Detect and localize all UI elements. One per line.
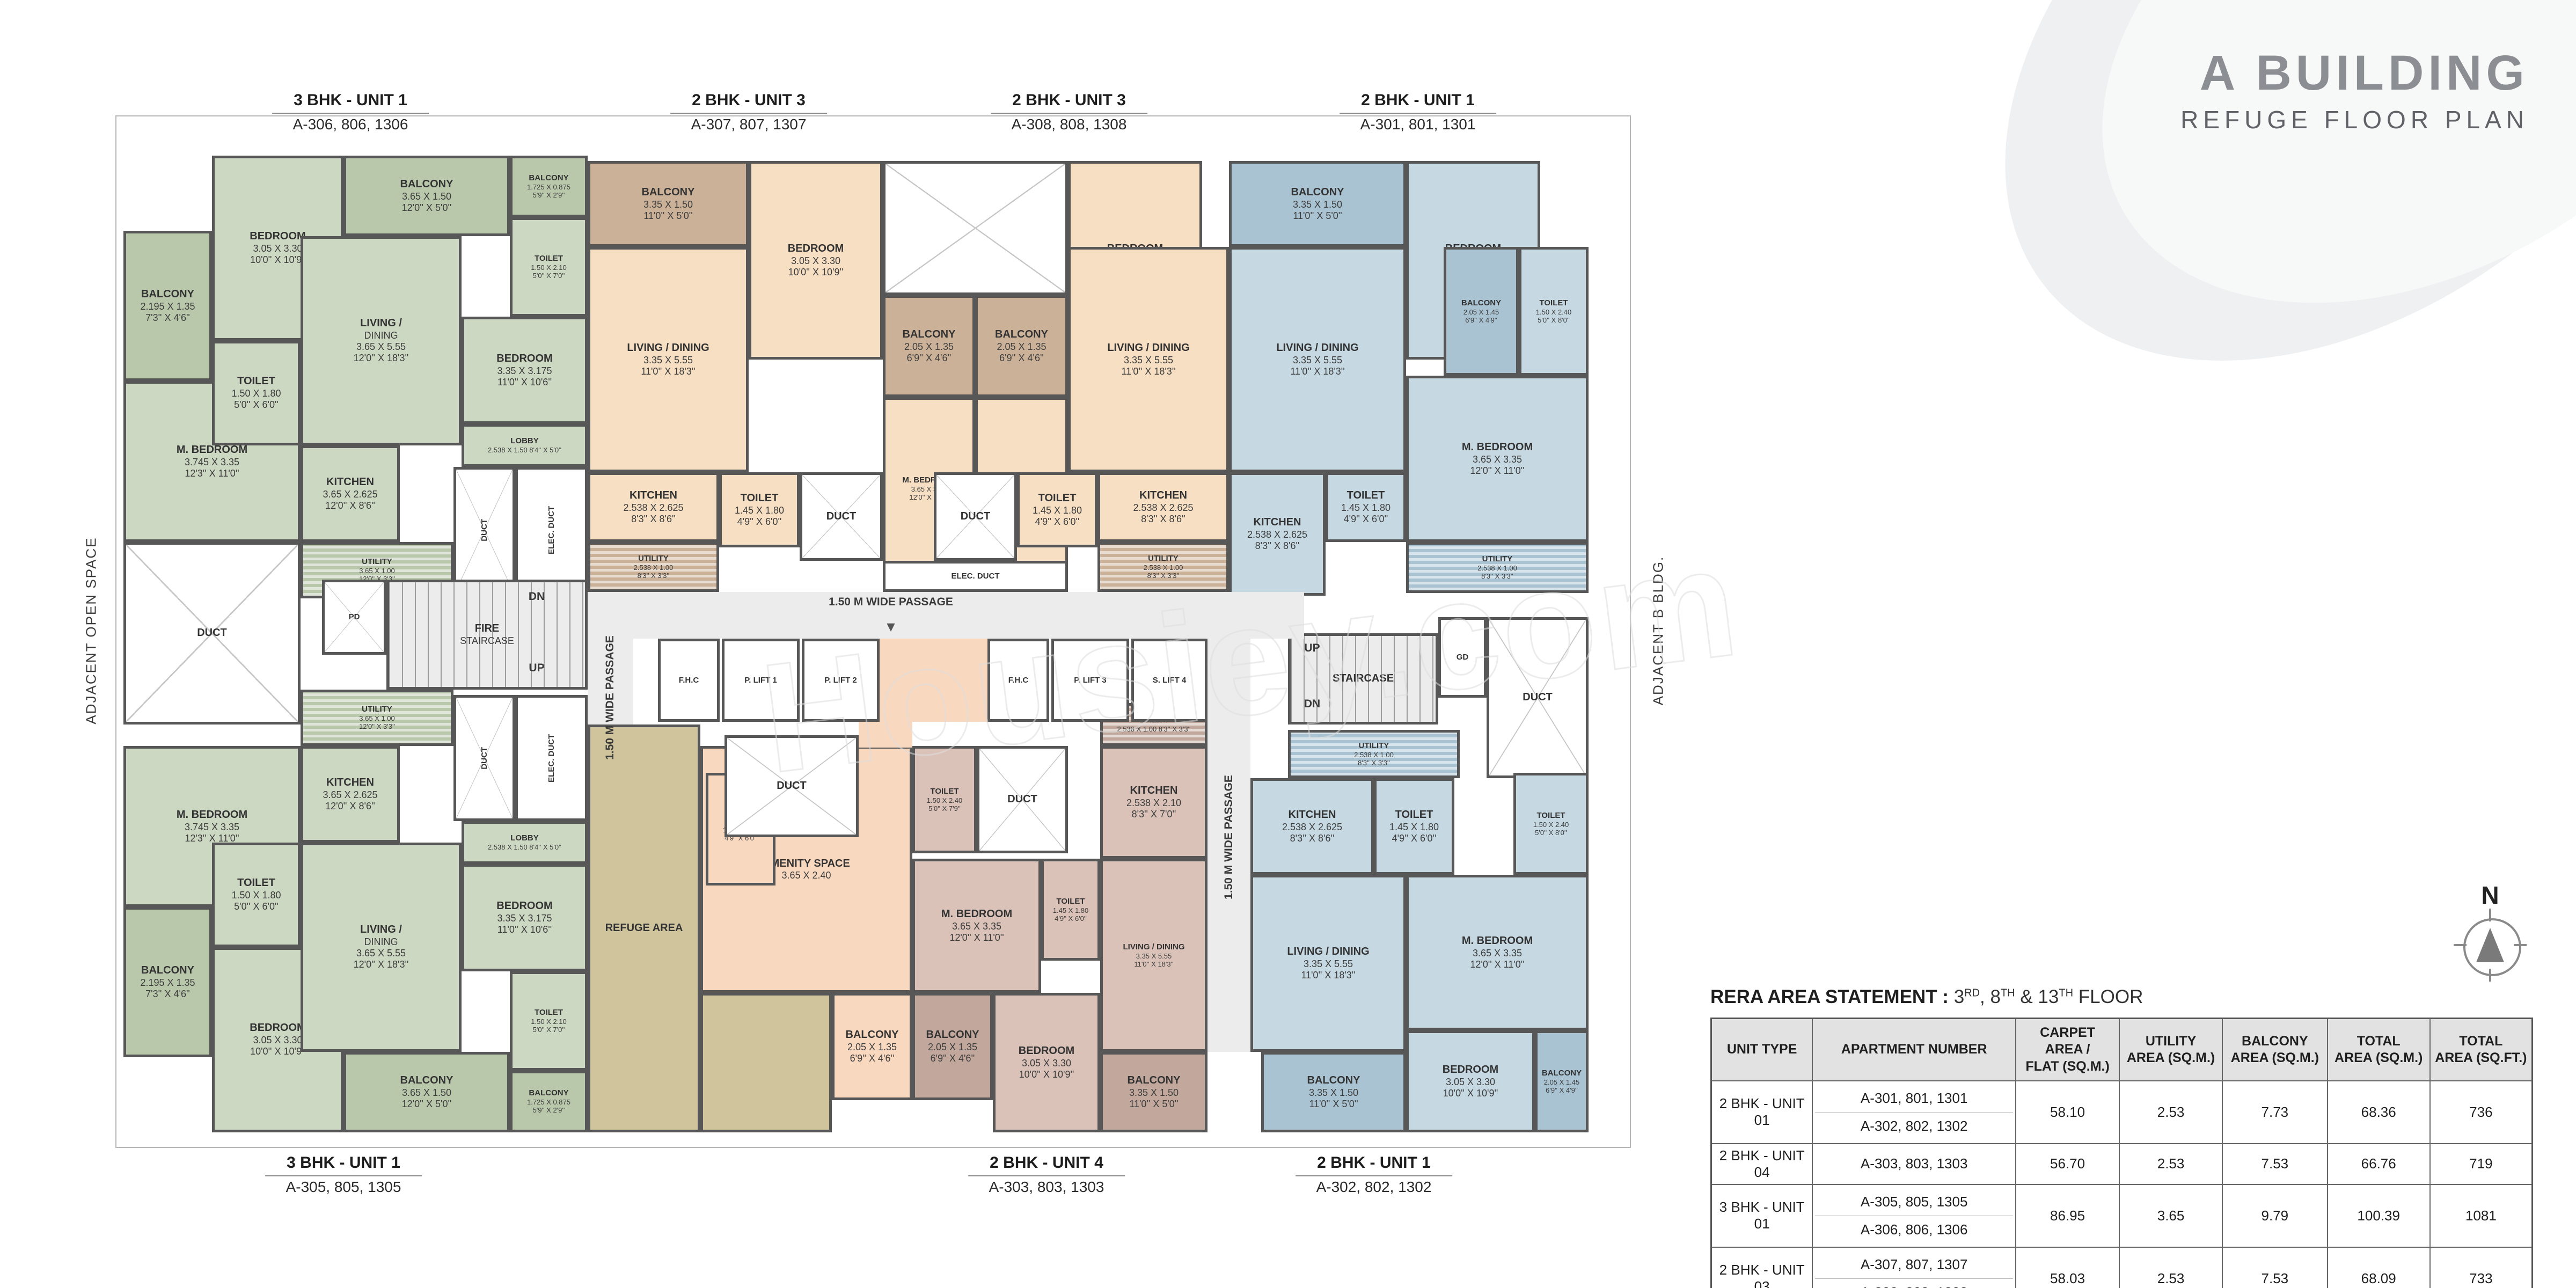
room-dimension: 11'0'' X 18'3'' [1123, 960, 1184, 968]
room-living-dining: LIVING / DINING3.35 X 5.5511'0'' X 18'3'… [1250, 875, 1406, 1052]
plan-label: UP [529, 662, 544, 675]
room-name: BALCONY [400, 1074, 453, 1087]
apartment-numbers-label: A-303, 803, 1303 [968, 1176, 1125, 1196]
room-toilet: TOILET1.50 X 2.405'0'' X 8'0'' [1519, 247, 1589, 376]
room-name: ELEC. DUCT [547, 506, 557, 554]
room-balcony: BALCONY2.05 X 1.456'9'' X 4'9'' [1535, 1030, 1589, 1132]
room-dimension: 6'9'' X 4'6'' [903, 353, 956, 364]
room-dimension: 6'9'' X 4'9'' [1461, 316, 1501, 324]
room-dimension: 12'0'' X 11'0'' [941, 932, 1012, 943]
room-name: M. BEDROOM [941, 908, 1012, 921]
room-name: BEDROOM [788, 243, 844, 255]
unit-callout: 2 BHK - UNIT 3A-307, 807, 1307 [670, 91, 827, 133]
room-name: UTILITY [1144, 554, 1183, 563]
room-toilet: TOILET1.45 X 1.804'9'' X 6'0'' [1374, 778, 1454, 875]
room-duct: DUCT [934, 472, 1017, 561]
room-living-dining: LIVING / DINING3.35 X 5.5511'0'' X 18'3'… [1229, 247, 1406, 472]
rera-area-statement: RERA AREA STATEMENT : 3RD, 8TH & 13TH FL… [1710, 986, 2533, 1288]
room-name: TOILET [231, 877, 281, 890]
room-dimension: 6'9'' X 4'9'' [1542, 1086, 1582, 1094]
room-name: BEDROOM [250, 230, 305, 243]
room-lobby: LOBBY2.538 X 1.50 8'4'' X 5'0'' [462, 424, 588, 467]
room-dimension: 2.538 X 2.625 [1133, 502, 1193, 514]
room-dimension: 12'3'' X 11'0'' [177, 468, 247, 479]
room-dimension: 2.538 X 1.00 [634, 563, 674, 572]
room-bedroom: BEDROOM3.35 X 3.17511'0'' X 10'6'' [462, 317, 588, 424]
table-cell-balcony: 7.73 [2222, 1081, 2328, 1144]
room-dimension: 1.725 X 0.875 [527, 183, 570, 191]
room-dimension: 12'0'' X 11'0'' [1462, 959, 1533, 970]
apartment-numbers-label: A-301, 801, 1301 [1340, 114, 1496, 133]
room-toilet: TOILET1.45 X 1.804'9'' X 6'0'' [719, 472, 800, 547]
adjacent-open-space-label: ADJACENT OPEN SPACE [83, 537, 100, 724]
room-dimension: 4'9'' X 6'0'' [735, 516, 784, 528]
room-name: BALCONY [1307, 1074, 1360, 1087]
table-cell-utility: 2.53 [2119, 1144, 2222, 1184]
room-kitchen: KITCHEN3.65 X 2.62512'0'' X 8'6'' [301, 746, 400, 843]
room-dimension: 5'0'' X 6'0'' [231, 901, 281, 912]
room-living-dining: LIVING / DINING3.35 X 5.5511'0'' X 18'3'… [588, 247, 749, 472]
room-duct: DUCT [453, 467, 515, 593]
room-void [883, 161, 1068, 295]
room-dimension: 3.65 X 2.40 [763, 870, 850, 881]
table-header: UTILITY AREA (SQ.M.) [2119, 1019, 2222, 1081]
room-bedroom: BEDROOM3.05 X 3.3010'0'' X 10'9'' [1406, 1030, 1535, 1132]
unit-type-label: 2 BHK - UNIT 4 [968, 1154, 1125, 1176]
room-balcony: BALCONY3.35 X 1.5011'0'' X 5'0'' [1229, 161, 1406, 247]
room-dimension: 5'9'' X 2'9'' [527, 1106, 570, 1114]
room-balcony: BALCONY2.05 X 1.356'9'' X 4'6'' [883, 295, 975, 397]
table-cell-balcony: 9.79 [2222, 1184, 2328, 1247]
unit-type-label: 2 BHK - UNIT 1 [1296, 1154, 1452, 1176]
compass-icon [2458, 913, 2522, 977]
table-cell-utility: 3.65 [2119, 1184, 2222, 1247]
room-elec-duct: ELEC. DUCT [515, 467, 588, 593]
room-dimension: 11'0'' X 5'0'' [1307, 1099, 1360, 1110]
room-bedroom: BEDROOM3.05 X 3.3010'0'' X 10'9'' [993, 993, 1100, 1132]
room-name: M. BEDROOM [177, 444, 247, 457]
room-dimension: 3.35 X 1.50 [1307, 1087, 1360, 1099]
room-dimension: 11'0'' X 5'0'' [642, 210, 695, 222]
unit-callout: 2 BHK - UNIT 1A-302, 802, 1302 [1296, 1154, 1452, 1196]
room-dimension: 3.05 X 3.30 [1019, 1058, 1074, 1069]
room-name: F.H.C [679, 676, 699, 685]
room-toilet: TOILET1.50 X 2.105'0'' X 7'0'' [510, 971, 588, 1071]
room-kitchen: KITCHEN2.538 X 2.6258'3'' X 8'6'' [588, 472, 719, 542]
room-dimension: 11'0'' X 18'3'' [1287, 970, 1369, 981]
room-name: BEDROOM [496, 900, 552, 913]
room-dimension: 3.65 X 1.50 [400, 1087, 453, 1099]
room-name: TOILET [531, 254, 567, 264]
room-name: M. BEDROOM [177, 809, 247, 822]
room-dimension: 4'9'' X 6'0'' [1341, 514, 1391, 525]
room-dimension: 2.195 X 1.35 [140, 977, 195, 989]
room-name: LIVING / [354, 924, 409, 936]
room-kitchen: KITCHEN2.538 X 2.6258'3'' X 8'6'' [1097, 472, 1229, 542]
room-dimension: 3.65 X 5.55 [354, 341, 409, 353]
room-dimension: 2.538 X 2.10 [1126, 797, 1181, 809]
room-name: DUCT [480, 747, 489, 770]
room-dimension: 1.50 X 2.40 [1536, 308, 1572, 316]
room-dimension: 2.538 X 1.00 [1144, 563, 1183, 572]
room-elec-duct: ELEC. DUCT [883, 561, 1068, 592]
table-cell-balcony: 7.53 [2222, 1247, 2328, 1288]
room-name: UTILITY [634, 554, 674, 563]
room-dimension: 5'0'' X 6'0'' [231, 399, 281, 411]
room-dimension: 4'9'' X 6'0'' [1389, 833, 1439, 844]
room-living-dining: LIVING / DINING3.35 X 5.5511'0'' X 18'3'… [1068, 247, 1229, 472]
room-dimension: 3.65 X 3.35 [941, 921, 1012, 932]
room-dimension: 3.65 X 2.625 [323, 489, 377, 500]
room-dimension: 11'0'' X 5'0'' [1291, 210, 1344, 222]
room-dimension: 11'0'' X 10'6'' [496, 924, 552, 935]
table-header: TOTAL AREA (SQ.FT.) [2430, 1019, 2533, 1081]
plan-label: 1.50 M WIDE PASSAGE [829, 596, 953, 609]
room-name: REFUGE AREA [605, 922, 683, 935]
table-cell-unit: 2 BHK - UNIT 03 [1711, 1247, 1813, 1288]
room-bedroom: BEDROOM3.05 X 3.3010'0'' X 10'9'' [749, 161, 883, 360]
table-cell-total_sqm: 100.39 [2328, 1184, 2430, 1247]
room-dimension: 12'0'' X 18'3'' [354, 959, 409, 970]
room-dimension: 10'0'' X 10'9'' [1019, 1069, 1074, 1080]
room-dimension: 12'0'' X 8'6'' [323, 801, 377, 812]
room-name: TOILET [531, 1008, 567, 1018]
room-balcony: BALCONY1.725 X 0.8755'9'' X 2'9'' [510, 1071, 588, 1132]
room-dimension: 3.35 X 3.175 [496, 365, 552, 377]
room-balcony: BALCONY3.65 X 1.5012'0'' X 5'0'' [343, 1052, 510, 1132]
room-name: BALCONY [1128, 1074, 1181, 1087]
room-dimension: 6'9'' X 4'6'' [846, 1053, 899, 1064]
room-name: TOILET [231, 375, 281, 388]
room-dimension: 8'3'' X 8'6'' [623, 514, 683, 525]
room-balcony: BALCONY2.05 X 1.356'9'' X 4'6'' [912, 993, 993, 1100]
room-toilet: TOILET1.50 X 1.805'0'' X 6'0'' [212, 341, 301, 445]
table-row: 2 BHK - UNIT 04A-303, 803, 130356.702.53… [1711, 1144, 2533, 1184]
room-dimension: 2.538 X 1.50 8'4'' X 5'0'' [488, 843, 561, 851]
room-name: LIVING / DINING [1276, 342, 1358, 355]
room-dimension: 4'9'' X 6'0'' [1053, 914, 1089, 923]
room-dimension: 1.50 X 2.10 [531, 264, 567, 272]
room-balcony: BALCONY2.05 X 1.356'9'' X 4'6'' [832, 993, 912, 1100]
room-name: BALCONY [903, 328, 956, 341]
room-balcony: BALCONY2.05 X 1.356'9'' X 4'6'' [975, 295, 1068, 397]
table-cell-carpet: 58.03 [2016, 1247, 2119, 1288]
room-toilet: TOILET1.45 X 1.804'9'' X 6'0'' [1326, 472, 1406, 542]
room-name: DUCT [480, 519, 489, 541]
room-balcony: BALCONY3.35 X 1.5011'0'' X 5'0'' [1261, 1052, 1406, 1132]
room-dimension: 3.35 X 5.55 [1276, 355, 1358, 366]
north-label: N [2447, 883, 2533, 908]
unit-type-label: 2 BHK - UNIT 3 [991, 91, 1147, 114]
room-dimension: 3.65 X 3.35 [1462, 948, 1533, 959]
room-name: BALCONY [995, 328, 1048, 341]
room-name: BALCONY [1291, 186, 1344, 199]
room-name: M. BEDROOM [1462, 935, 1533, 948]
room-name: TOILET [735, 492, 784, 505]
room-dimension: 3.05 X 3.30 [250, 1035, 305, 1046]
room-dimension: 10'0'' X 10'9'' [250, 1046, 305, 1057]
room-name: KITCHEN [1247, 516, 1307, 529]
room-name: LIVING / DINING [1107, 342, 1189, 355]
room-dimension: 6'9'' X 4'6'' [995, 353, 1048, 364]
unit-callout: 3 BHK - UNIT 1A-305, 805, 1305 [265, 1154, 422, 1196]
table-row: 2 BHK - UNIT 01A-301, 801, 1301A-302, 80… [1711, 1081, 2533, 1144]
room-dimension: 1.725 X 0.875 [527, 1098, 570, 1106]
room-fire-staircase: FIRESTAIRCASE [386, 580, 588, 690]
room-name: BEDROOM [496, 353, 552, 365]
room-dimension: 3.05 X 3.30 [250, 243, 305, 254]
rera-table: UNIT TYPEAPARTMENT NUMBERCARPET AREA / F… [1710, 1018, 2533, 1288]
room-m-bedroom: M. BEDROOM3.65 X 3.3512'0'' X 11'0'' [1406, 376, 1589, 542]
table-header: APARTMENT NUMBER [1812, 1019, 2016, 1081]
room-dimension: 3.745 X 3.35 [177, 457, 247, 468]
room-m-bedroom: M. BEDROOM3.65 X 3.3512'0'' X 11'0'' [912, 859, 1041, 993]
room-name: BEDROOM [250, 1022, 305, 1035]
room-dimension: 1.50 X 2.10 [531, 1018, 567, 1026]
room-name: UTILITY [1354, 741, 1394, 751]
room-dimension: 3.35 X 3.175 [496, 913, 552, 924]
room-duct: DUCT [800, 472, 883, 561]
room-toilet: TOILET1.50 X 2.405'0'' X 8'0'' [1513, 773, 1589, 875]
room-name: KITCHEN [323, 777, 377, 789]
room-dimension: 3.65 X 2.625 [323, 789, 377, 801]
room-balcony: BALCONY1.725 X 0.8755'9'' X 2'9'' [510, 156, 588, 217]
room-name: BALCONY [1461, 298, 1501, 308]
room-dimension: 3.35 X 1.50 [1128, 1087, 1181, 1099]
room-name: KITCHEN [1126, 785, 1181, 797]
table-header: CARPET AREA / FLAT (SQ.M.) [2016, 1019, 2119, 1081]
table-cell-total_sqft: 733 [2430, 1247, 2533, 1288]
room-living-dining: LIVING / DINING3.35 X 5.5511'0'' X 18'3'… [1100, 859, 1207, 1052]
room-dimension: 8'3'' X 8'6'' [1133, 514, 1193, 525]
building-title: A BUILDING [2180, 48, 2529, 98]
room-name: LIVING / DINING [627, 342, 709, 355]
table-cell-total_sqft: 736 [2430, 1081, 2533, 1144]
room-balcony: BALCONY2.05 X 1.456'9'' X 4'9'' [1444, 247, 1519, 376]
room-balcony: BALCONY3.65 X 1.5012'0'' X 5'0'' [343, 156, 510, 236]
room-balcony: BALCONY2.195 X 1.357'3'' X 4'6'' [123, 231, 212, 381]
room-living-dining: LIVING /DINING3.65 X 5.5512'0'' X 18'3'' [301, 843, 462, 1052]
room-name: UTILITY [359, 705, 395, 714]
apartment-numbers-label: A-302, 802, 1302 [1296, 1176, 1452, 1196]
room-dimension: 2.538 X 2.625 [1247, 529, 1307, 540]
room-dimension: 11'0'' X 18'3'' [1276, 366, 1358, 377]
room-dimension: 2.195 X 1.35 [140, 301, 195, 312]
room-name: KITCHEN [1133, 489, 1193, 502]
unit-type-label: 2 BHK - UNIT 1 [1340, 91, 1496, 114]
room-refuge-area [700, 993, 832, 1132]
room-balcony: BALCONY3.35 X 1.5011'0'' X 5'0'' [1100, 1052, 1207, 1132]
table-header: BALCONY AREA (SQ.M.) [2222, 1019, 2328, 1081]
table-cell-carpet: 56.70 [2016, 1144, 2119, 1184]
room-dimension: 1.45 X 1.80 [1389, 822, 1439, 833]
plan-label: 1.50 M WIDE PASSAGE [604, 635, 617, 760]
room-name: BALCONY [140, 964, 195, 977]
room-dimension: 11'0'' X 10'6'' [496, 377, 552, 388]
room-living-dining: LIVING /DINING3.65 X 5.5512'0'' X 18'3'' [301, 236, 462, 445]
room-dimension: 1.50 X 2.40 [927, 796, 963, 804]
table-cell-unit: 2 BHK - UNIT 01 [1711, 1081, 1813, 1144]
room-dimension: 1.50 X 1.80 [231, 890, 281, 901]
table-cell-total_sqm: 68.09 [2328, 1247, 2430, 1288]
table-cell-unit: 2 BHK - UNIT 04 [1711, 1144, 1813, 1184]
room-name: LIVING / DINING [1287, 946, 1369, 958]
room-name: KITCHEN [1282, 809, 1342, 822]
unit-callout: 2 BHK - UNIT 3A-308, 808, 1308 [991, 91, 1147, 133]
table-cell-total_sqm: 68.36 [2328, 1081, 2430, 1144]
room-name: FIRE [460, 623, 514, 635]
room-dimension: 4'9'' X 6'0'' [1033, 516, 1082, 528]
room-dimension: 12'0'' X 5'0'' [400, 1099, 453, 1110]
room-name: DUCT [961, 510, 991, 523]
unit-type-label: 2 BHK - UNIT 3 [670, 91, 827, 114]
room-name: AMENITY SPACE [763, 858, 850, 870]
rera-title: RERA AREA STATEMENT : 3RD, 8TH & 13TH FL… [1710, 986, 2533, 1008]
room-name: ELEC. DUCT [547, 734, 557, 782]
room-dimension: 8'3'' X 3'3'' [634, 572, 674, 580]
room-name: BALCONY [400, 178, 453, 191]
room-duct: DUCT [453, 695, 515, 821]
room-dimension: 3.35 X 5.55 [1107, 355, 1189, 366]
table-cell-balcony: 7.53 [2222, 1144, 2328, 1184]
room-dimension: 3.35 X 5.55 [627, 355, 709, 366]
room-elec-duct: ELEC. DUCT [515, 695, 588, 821]
room-dimension: 3.745 X 3.35 [177, 822, 247, 833]
room-toilet: TOILET1.50 X 1.805'0'' X 6'0'' [212, 843, 301, 947]
room-dimension: 5'9'' X 2'9'' [527, 191, 570, 199]
room-dimension: 3.35 X 1.50 [642, 199, 695, 210]
room-dimension: 2.538 X 2.625 [623, 502, 683, 514]
room-refuge-area: REFUGE AREA [588, 724, 700, 1132]
room-dimension: 3.05 X 3.30 [788, 255, 844, 267]
room-dimension: 2.05 X 1.45 [1461, 308, 1501, 316]
room-dimension: 12'0'' X 11'0'' [1462, 465, 1533, 477]
room-dimension: 12'0'' X 3'3'' [359, 722, 395, 730]
room-utility: UTILITY3.65 X 1.0012'0'' X 3'3'' [301, 690, 453, 746]
room-dimension: 1.45 X 1.80 [1033, 505, 1082, 516]
table-cell-utility: 2.53 [2119, 1247, 2222, 1288]
room-name: BALCONY [642, 186, 695, 199]
room-dimension: 12'0'' X 18'3'' [354, 353, 409, 364]
table-cell-apts: A-305, 805, 1305A-306, 806, 1306 [1812, 1184, 2016, 1247]
room-dimension: 3.65 X 1.50 [400, 191, 453, 202]
table-cell-apts: A-301, 801, 1301A-302, 802, 1302 [1812, 1081, 2016, 1144]
room-name: KITCHEN [623, 489, 683, 502]
room-name: TOILET [1341, 489, 1391, 502]
room-dimension: 10'0'' X 10'9'' [788, 267, 844, 278]
room-name: BALCONY [140, 288, 195, 301]
room-dimension: 10'0'' X 10'9'' [250, 254, 305, 266]
room-m-bedroom: M. BEDROOM3.65 X 3.3512'0'' X 11'0'' [1406, 875, 1589, 1030]
table-cell-total_sqm: 66.76 [2328, 1144, 2430, 1184]
table-row: 3 BHK - UNIT 01A-305, 805, 1305A-306, 80… [1711, 1184, 2533, 1247]
room-dimension: 5'0'' X 7'9'' [927, 804, 963, 813]
room-duct: DUCT [123, 542, 301, 724]
room-dimension: 3.65 X 3.35 [1462, 454, 1533, 465]
room-name: LIVING / [354, 317, 409, 330]
room-name: PD [349, 612, 360, 622]
room-dimension: 3.65 X 1.00 [359, 567, 395, 575]
room-name: LOBBY [488, 436, 561, 446]
room-name: KITCHEN [323, 476, 377, 489]
plan-label: 1.50 M WIDE PASSAGE [1223, 775, 1235, 899]
room-dimension: 1.45 X 1.80 [1341, 502, 1391, 514]
room-dimension: 5'0'' X 7'0'' [531, 272, 567, 280]
north-compass: N [2447, 883, 2533, 977]
room-dimension: 10'0'' X 10'9'' [1443, 1088, 1498, 1099]
room-dimension: 2.05 X 1.35 [846, 1042, 899, 1053]
room-dimension: 12'0'' X 8'6'' [323, 500, 377, 511]
room-dimension: DINING [354, 330, 409, 341]
room-dimension: 7'3'' X 4'6'' [140, 312, 195, 324]
room-dimension: 8'3'' X 8'6'' [1282, 833, 1342, 844]
room-fhc: F.H.C [658, 639, 720, 722]
room-name: UTILITY [359, 557, 395, 567]
apartment-numbers-label: A-306, 806, 1306 [272, 114, 429, 133]
room-dimension: 1.45 X 1.80 [735, 505, 784, 516]
room-name: ELEC. DUCT [952, 572, 1000, 581]
apartment-numbers-label: A-305, 805, 1305 [265, 1176, 422, 1196]
room-dimension: 6'9'' X 4'6'' [926, 1053, 979, 1064]
unit-callout: 2 BHK - UNIT 4A-303, 803, 1303 [968, 1154, 1125, 1196]
room-kitchen: KITCHEN2.538 X 2.6258'3'' X 8'6'' [1250, 778, 1374, 875]
room-dimension: 2.538 X 1.00 [1354, 751, 1394, 759]
room-name: DUCT [826, 510, 857, 523]
table-cell-unit: 3 BHK - UNIT 01 [1711, 1184, 1813, 1247]
room-name: TOILET [1389, 809, 1439, 822]
table-cell-utility: 2.53 [2119, 1081, 2222, 1144]
room-name: M. BEDROOM [1462, 441, 1533, 454]
room-name: BEDROOM [1019, 1045, 1074, 1058]
table-cell-total_sqft: 1081 [2430, 1184, 2533, 1247]
room-name: TOILET [1033, 492, 1082, 505]
room-dimension: 5'0'' X 7'0'' [531, 1026, 567, 1034]
room-name: BALCONY [527, 173, 570, 183]
room-dimension: 12'0'' X 5'0'' [400, 202, 453, 214]
room-dimension: 11'0'' X 18'3'' [1107, 366, 1189, 377]
room-name: TOILET [1536, 298, 1572, 308]
room-dimension: 2.05 X 1.35 [903, 341, 956, 353]
plan-subtitle: REFUGE FLOOR PLAN [2180, 105, 2529, 134]
room-dimension: 3.05 X 3.30 [1443, 1077, 1498, 1088]
room-dimension: 8'3'' X 8'6'' [1247, 540, 1307, 552]
room-name: DUCT [1007, 793, 1037, 806]
room-dimension: 3.35 X 5.55 [1123, 952, 1184, 960]
room-name: BALCONY [926, 1029, 979, 1042]
room-dimension: 3.65 X 1.00 [359, 714, 395, 722]
room-dimension: 5'0'' X 8'0'' [1536, 316, 1572, 324]
room-name: BALCONY [1542, 1069, 1582, 1078]
room-lobby: LOBBY2.538 X 1.50 8'4'' X 5'0'' [462, 821, 588, 864]
room-kitchen: KITCHEN3.65 X 2.62512'0'' X 8'6'' [301, 445, 400, 542]
room-balcony: BALCONY2.195 X 1.357'3'' X 4'6'' [123, 907, 212, 1057]
room-dimension: 1.50 X 2.40 [1533, 821, 1569, 829]
room-dimension: DINING [354, 936, 409, 948]
room-dimension: STAIRCASE [460, 635, 514, 647]
room-toilet: TOILET1.45 X 1.804'9'' X 6'0'' [1017, 472, 1097, 547]
room-utility: UTILITY2.538 X 1.008'3'' X 3'3'' [588, 542, 719, 592]
table-cell-apts: A-303, 803, 1303 [1812, 1144, 2016, 1184]
room-name: LIVING / DINING [1123, 942, 1184, 952]
table-cell-total_sqft: 719 [2430, 1144, 2533, 1184]
room-dimension: 5'0'' X 8'0'' [1533, 829, 1569, 837]
room-dimension: 1.45 X 1.80 [1053, 906, 1089, 914]
table-header: TOTAL AREA (SQ.M.) [2328, 1019, 2430, 1081]
room-dimension: 11'0'' X 5'0'' [1128, 1099, 1181, 1110]
table-cell-carpet: 58.10 [2016, 1081, 2119, 1144]
apartment-numbers-label: A-308, 808, 1308 [991, 114, 1147, 133]
room-toilet: TOILET1.50 X 2.105'0'' X 7'0'' [510, 217, 588, 317]
